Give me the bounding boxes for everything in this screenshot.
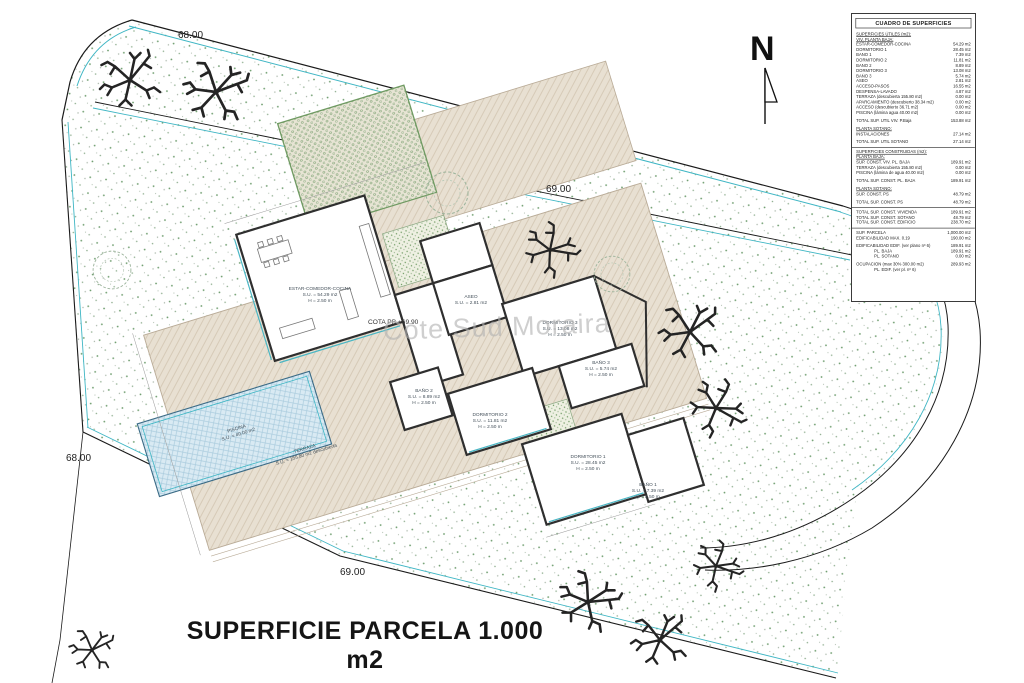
room-label: ASEO: [464, 294, 478, 300]
table-cell-label: EDIFICABILIDAD MAX. 0.19: [856, 236, 910, 241]
table-cell-label: SUP. CONST. PS: [856, 192, 889, 197]
table-row: TOTAL SUP. CONST. PS48.79 m2: [856, 200, 971, 205]
svg-text:S.U. = 7.39 m2: S.U. = 7.39 m2: [632, 488, 664, 494]
table-cell-value: 27.14 m2: [950, 140, 970, 145]
table-cell-label: TOTAL SUP. ÚTIL VIV. P.Baja: [856, 118, 911, 123]
svg-text:S.U. = 2.81 m2: S.U. = 2.81 m2: [455, 300, 487, 306]
table-row: PL. EDIF. (ver pl. nº 6): [856, 267, 971, 272]
table-cell-value: 48.79 m2: [950, 192, 970, 197]
table-row: TOTAL SUP. ÚTIL SÓTANO27.14 m2: [856, 140, 971, 145]
contour-label-upper: 69.00: [546, 184, 571, 195]
table-row: PISCINA (lámina de agua 40.00 m2)0.00 m2: [856, 171, 971, 176]
table-cell-value: 189.91 m2: [948, 179, 971, 184]
svg-text:H = 2.50 m: H = 2.50 m: [478, 424, 502, 430]
table-cell-value: 0.00 m2: [953, 110, 971, 115]
table-section: SUP. PARCELA1,000.00 m2EDIFICABILIDAD MA…: [852, 228, 975, 275]
table-cell-label: TOTAL SUP. CONST. PS: [856, 200, 903, 205]
contour-label-top: 68.00: [178, 30, 203, 41]
table-cell-label: TOTAL SUP. CONST. EDIFICIO: [856, 220, 915, 225]
svg-text:S.U. = 28.45 m2: S.U. = 28.45 m2: [571, 460, 606, 466]
table-section: SUPERFICIES CONSTRUIDAS (m2):PLANTA BAJA…: [852, 147, 975, 207]
svg-text:S.U. = 5.74 m2: S.U. = 5.74 m2: [585, 366, 617, 372]
surface-table-title: CUADRO DE SUPERFICIES: [855, 18, 971, 28]
tree-icon: [64, 621, 121, 676]
site-plan-page: 68.00 69.00 68.00 69.00 COTA PB +69.90 E…: [0, 0, 1024, 683]
table-cell-label: TOTAL SUP. ÚTIL SÓTANO: [856, 140, 908, 145]
contour-label-left: 68.00: [66, 453, 91, 464]
table-row: TOTAL SUP. CONST. EDIFICIO238.70 m2: [856, 220, 971, 225]
room-label: BAÑO 3: [592, 359, 610, 366]
table-cell-label: PISCINA (lámina de agua 40.00 m2): [856, 171, 924, 176]
table-section: TOTAL SUP. CONST. VIVIENDA189.91 m2TOTAL…: [852, 207, 975, 228]
table-section: SUPERFICIES ÚTILES (m2):VIV. PLANTA BAJA…: [852, 30, 975, 147]
svg-text:S.U. = 54.29 m2: S.U. = 54.29 m2: [303, 292, 338, 298]
svg-text:S.U. = 11.81 m2: S.U. = 11.81 m2: [473, 418, 508, 424]
svg-text:H = 2.50 m: H = 2.50 m: [589, 372, 613, 378]
table-cell-value: [968, 267, 971, 272]
table-cell-value: 238.70 m2: [948, 220, 971, 225]
parcel-title: SUPERFICIE PARCELA 1.000 m2: [175, 617, 555, 675]
north-label: N: [750, 30, 775, 68]
room-label: BAÑO 2: [415, 387, 433, 394]
room-label: ESTAR-COMEDOR-COCINA: [289, 286, 352, 292]
table-cell-label: PISCINA (lámina agua 40.00 m2): [856, 110, 918, 115]
table-cell-label: TOTAL SUP. CONST. PL. BAJA: [856, 179, 915, 184]
room-label: BAÑO 1: [639, 481, 657, 488]
table-cell-value: 48.79 m2: [950, 200, 970, 205]
room-label: DORMITORIO 1: [570, 454, 605, 460]
table-cell-value: 153.88 m2: [948, 118, 971, 123]
table-cell-value: 0.00 m2: [953, 254, 971, 259]
table-row: PISCINA (lámina agua 40.00 m2)0.00 m2: [856, 110, 971, 115]
svg-text:H = 2.50 m: H = 2.50 m: [412, 400, 436, 406]
table-cell-label: INSTALACIONES: [856, 132, 889, 137]
svg-text:H = 2.50 m: H = 2.50 m: [576, 466, 600, 472]
table-cell-value: 190.00 m2: [948, 236, 971, 241]
svg-text:H = 2.50 m: H = 2.50 m: [308, 298, 332, 304]
table-cell-value: 0.00 m2: [953, 171, 971, 176]
table-row: TOTAL SUP. CONST. PL. BAJA189.91 m2: [856, 179, 971, 184]
table-cell-label: PL. EDIF. (ver pl. nº 6): [856, 267, 916, 272]
svg-text:S.U. = 8.89 m2: S.U. = 8.89 m2: [408, 394, 440, 400]
surface-table: CUADRO DE SUPERFICIES SUPERFICIES ÚTILES…: [851, 13, 976, 302]
contour-label-bottom: 69.00: [340, 567, 365, 578]
table-cell-value: 27.14 m2: [950, 132, 970, 137]
table-cell-label: PL. SÓTANO: [856, 254, 899, 259]
room-label: DORMITORIO 2: [472, 412, 507, 418]
svg-text:H = 2.50 m: H = 2.50 m: [636, 494, 660, 500]
north-arrow: N: [750, 30, 777, 124]
